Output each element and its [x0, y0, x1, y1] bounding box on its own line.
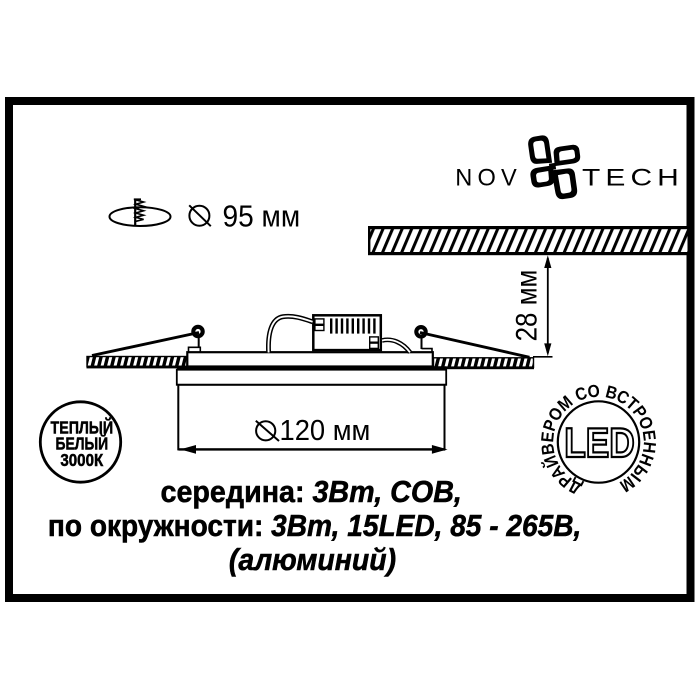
svg-text:по окружности: 3Вт, 15LED, 85: по окружности: 3Вт, 15LED, 85 - 265В, — [48, 509, 581, 544]
svg-text:TECH: TECH — [582, 164, 684, 190]
svg-text:NOV: NOV — [455, 165, 522, 191]
svg-text:(алюминий): (алюминий) — [229, 543, 396, 577]
svg-text:120 мм: 120 мм — [280, 415, 371, 447]
svg-text:95 мм: 95 мм — [223, 201, 301, 234]
svg-text:середина: 3Вт, COB,: середина: 3Вт, COB, — [161, 475, 462, 509]
svg-text:28 мм: 28 мм — [510, 270, 543, 342]
svg-text:LED: LED — [564, 420, 635, 467]
svg-text:3000К: 3000К — [60, 451, 104, 470]
